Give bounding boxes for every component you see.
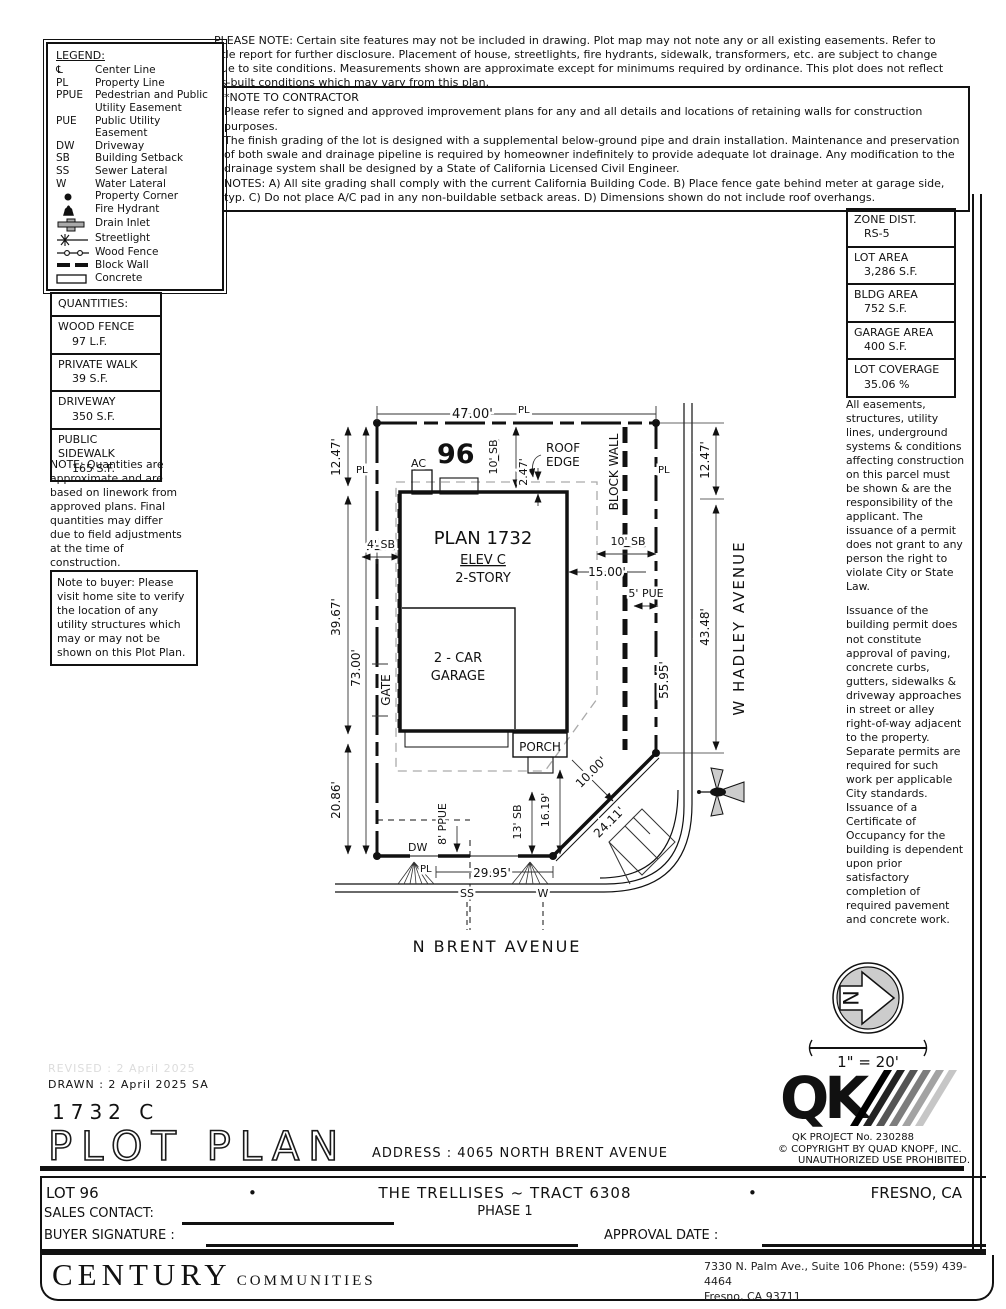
- legend-label: Streetlight: [95, 232, 216, 245]
- zone-label: LOT COVERAGE: [854, 363, 939, 376]
- builder-address: 7330 N. Palm Ave., Suite 106 Phone: (559…: [704, 1260, 992, 1305]
- sb-symbol: SB: [56, 152, 93, 165]
- pue-symbol: PUE: [56, 115, 93, 128]
- dim-1247-left: 12.47': [329, 438, 343, 476]
- drain-inlet-icon: [56, 217, 93, 232]
- ss-label: SS: [460, 887, 474, 900]
- note-to-contractor-box: *NOTE TO CONTRACTOR Please refer to sign…: [214, 86, 970, 212]
- plot-plan-sheet: PLEASE NOTE: Certain site features may n…: [0, 0, 1006, 1309]
- legend-label: Block Wall: [95, 259, 216, 272]
- gate-label: GATE: [379, 674, 393, 706]
- qty-label: PUBLIC SIDEWALK: [58, 433, 115, 460]
- quantities-title: QUANTITIES:: [51, 293, 161, 316]
- legend-label: Fire Hydrant: [95, 203, 216, 216]
- contractor-p1: Please refer to signed and approved impr…: [224, 105, 960, 134]
- zone-value: 400 S.F.: [854, 340, 950, 354]
- lot-number: 96: [437, 439, 475, 470]
- sb-13: 13' SB: [511, 804, 524, 839]
- north-letter: N: [838, 990, 862, 1006]
- legend-label: Water Lateral: [95, 178, 216, 191]
- dim-2995: 29.95': [473, 866, 511, 880]
- dim-73: 73.00': [349, 649, 363, 687]
- dim-1619: 16.19': [539, 793, 552, 828]
- legend-label: Wood Fence: [95, 246, 216, 259]
- phase-label: PHASE 1: [430, 1204, 580, 1219]
- legend-label: Property Line: [95, 77, 216, 90]
- approval-date-line[interactable]: [762, 1244, 986, 1247]
- quantities-note: NOTE: Quantities are approximate and are…: [50, 458, 182, 570]
- note-to-buyer-box: Note to buyer: Please visit home site to…: [50, 570, 198, 666]
- easements-note: All easements, structures, utility lines…: [846, 398, 966, 594]
- pue-5: 5' PUE: [628, 587, 663, 600]
- city-label: FRESNO, CA: [820, 1184, 962, 1202]
- ppue-8: 8' PPUE: [436, 803, 449, 845]
- bullet-1: •: [248, 1184, 257, 1202]
- century-wordmark: CENTURY: [52, 1257, 232, 1292]
- zone-data-table: ZONE DIST.RS-5 LOT AREA3,286 S.F. BLDG A…: [846, 208, 956, 398]
- house-footprint: [400, 470, 567, 773]
- dim-15: 15.00': [588, 565, 626, 579]
- qk-project-number: QK PROJECT No. 230288: [792, 1132, 914, 1143]
- ss-symbol: SS: [56, 165, 93, 178]
- block-wall-icon: [56, 259, 93, 270]
- legend-label: Property Corner: [95, 190, 216, 203]
- zone-value: 752 S.F.: [854, 302, 950, 316]
- builder-name: CENTURY COMMUNITIES: [52, 1257, 376, 1293]
- plan-label: PLAN 1732: [434, 528, 533, 549]
- qty-label: PRIVATE WALK: [58, 358, 137, 371]
- dim-4348: 43.48': [698, 608, 712, 646]
- concrete-icon: [56, 272, 93, 285]
- legend-label: Center Line: [95, 64, 216, 77]
- builder-address-line2: Fresno, CA 93711: [704, 1290, 801, 1303]
- ppue-symbol: PPUE: [56, 89, 93, 102]
- porch-label: PORCH: [519, 740, 561, 754]
- sheet-title: PLOT PLAN: [48, 1124, 347, 1170]
- contractor-p3: NOTES: A) All site grading shall comply …: [224, 177, 960, 206]
- right-notes: All easements, structures, utility lines…: [846, 398, 966, 937]
- builder-footer: CENTURY COMMUNITIES 7330 N. Palm Ave., S…: [40, 1255, 994, 1301]
- approval-date-label: APPROVAL DATE :: [604, 1228, 718, 1243]
- titleblock-thick-rule: [40, 1166, 964, 1171]
- legend-label: Public Utility Easement: [95, 115, 216, 140]
- dim-3967: 39.67': [329, 598, 343, 636]
- legend-label: Pedestrian and Public Utility Easement: [95, 89, 216, 114]
- site-plan-drawing: 96 47.00' PL PL PL PL 12.47' 39.67' 20.8…: [320, 393, 840, 968]
- please-note-text: PLEASE NOTE: Certain site features may n…: [214, 34, 954, 90]
- sales-contact-label: SALES CONTACT:: [44, 1206, 154, 1221]
- zone-label: BLDG AREA: [854, 288, 918, 301]
- buyer-signature-label: BUYER SIGNATURE :: [44, 1228, 175, 1243]
- pl-bottom: PL: [420, 864, 432, 875]
- qk-logo: QK: [778, 1068, 978, 1130]
- pl-left: PL: [356, 465, 368, 476]
- zone-value: 3,286 S.F.: [854, 265, 950, 279]
- wood-fence-icon: [56, 246, 93, 259]
- north-arrow: N 1" = 20': [800, 952, 940, 1070]
- block-wall-label: BLOCK WALL: [607, 433, 621, 510]
- qty-value: 39 S.F.: [58, 372, 156, 386]
- qty-label: WOOD FENCE: [58, 320, 134, 333]
- garage-label-2: GARAGE: [431, 669, 485, 684]
- streetlight-icon: [56, 232, 93, 246]
- zone-label: GARAGE AREA: [854, 326, 933, 339]
- dim-10: 10.00': [573, 754, 610, 791]
- qty-value: 97 L.F.: [58, 335, 156, 349]
- qk-copyright-2: UNAUTHORIZED USE PROHIBITED.: [798, 1155, 970, 1166]
- buyer-signature-line[interactable]: [206, 1244, 578, 1247]
- brent-avenue-label: N BRENT AVENUE: [413, 937, 582, 956]
- address-line: ADDRESS : 4065 NORTH BRENT AVENUE: [372, 1146, 668, 1161]
- fire-hydrant-icon: [56, 203, 93, 217]
- zone-value: 35.06 %: [854, 378, 950, 392]
- hadley-avenue-label: W HADLEY AVENUE: [730, 540, 748, 715]
- dimension-lines: [348, 406, 724, 878]
- w-symbol: W: [56, 178, 93, 191]
- sb-10-top: 10' SB: [487, 439, 500, 474]
- legend-label: Drain Inlet: [95, 217, 216, 230]
- legend-title: LEGEND:: [56, 49, 216, 62]
- sales-contact-line[interactable]: [182, 1222, 394, 1225]
- communities-wordmark: COMMUNITIES: [237, 1273, 376, 1289]
- story-label: 2-STORY: [455, 571, 511, 586]
- pl-top: PL: [518, 405, 530, 416]
- quantities-table: QUANTITIES: WOOD FENCE97 L.F. PRIVATE WA…: [50, 292, 162, 482]
- elev-label: ELEV C: [460, 553, 506, 568]
- dim-247: 2.47': [517, 458, 530, 486]
- legend-label: Sewer Lateral: [95, 165, 216, 178]
- property-corner-icon: [56, 190, 93, 203]
- contractor-title: *NOTE TO CONTRACTOR: [224, 91, 960, 105]
- legend-label: Concrete: [95, 272, 216, 285]
- zone-label: LOT AREA: [854, 251, 908, 264]
- bullet-2: •: [748, 1184, 757, 1202]
- legend-label: Driveway: [95, 140, 216, 153]
- zone-label: ZONE DIST.: [854, 213, 916, 226]
- centerline-symbol: ℄: [56, 64, 93, 77]
- streetlight-symbol: [697, 768, 744, 816]
- lot-label: LOT 96: [46, 1184, 99, 1202]
- dim-47: 47.00': [452, 407, 493, 422]
- zone-value: RS-5: [854, 227, 950, 241]
- plan-code: 1732 C: [52, 1100, 159, 1124]
- ac-label: AC: [411, 457, 426, 470]
- roof-edge-label-2: EDGE: [546, 455, 580, 469]
- sb-10-right: 10' SB: [610, 535, 645, 548]
- pl-right: PL: [658, 465, 670, 476]
- qty-value: 350 S.F.: [58, 410, 156, 424]
- legend-label: Building Setback: [95, 152, 216, 165]
- drawn-line: DRAWN : 2 April 2025 SA: [48, 1078, 209, 1091]
- roof-edge-label-1: ROOF: [546, 441, 580, 455]
- revised-line: REVISED : 2 April 2025: [48, 1062, 196, 1075]
- dw-label: DW: [408, 841, 427, 854]
- sb-4: 4' SB: [367, 538, 395, 551]
- qk-copyright-1: © COPYRIGHT BY QUAD KNOPF, INC.: [778, 1144, 962, 1155]
- titleblock-thin-rule: [40, 1176, 986, 1178]
- garage-label-1: 2 - CAR: [434, 651, 482, 666]
- dim-1247-right: 12.47': [698, 441, 712, 479]
- builder-address-line1: 7330 N. Palm Ave., Suite 106 Phone: (559…: [704, 1260, 967, 1288]
- dim-2411: 24.11': [591, 804, 628, 841]
- w-label: W: [538, 887, 549, 900]
- permit-note: Issuance of the building permit does not…: [846, 604, 966, 927]
- dw-symbol: DW: [56, 140, 93, 153]
- property-line-symbol: PL: [56, 77, 93, 90]
- dim-2086: 20.86': [329, 781, 343, 819]
- contractor-p2: The finish grading of the lot is designe…: [224, 134, 960, 177]
- qty-label: DRIVEWAY: [58, 395, 116, 408]
- tract-label: THE TRELLISES ~ TRACT 6308: [338, 1184, 672, 1202]
- dim-5595: 55.95': [657, 661, 671, 699]
- titleblock-left-border: [40, 1177, 42, 1249]
- legend-box: LEGEND: ℄Center Line PLProperty Line PPU…: [46, 42, 224, 291]
